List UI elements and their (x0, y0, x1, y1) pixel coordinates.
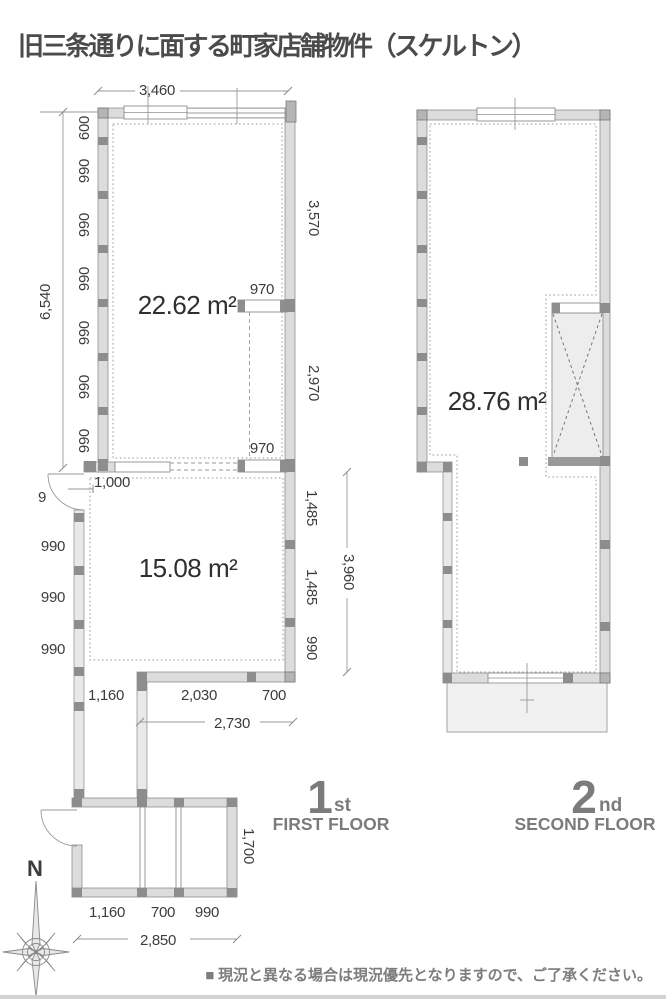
dim-label: 700 (151, 904, 175, 921)
wall (72, 888, 237, 897)
wall (137, 672, 295, 682)
dim-label: 600 (76, 116, 93, 140)
opening-post (238, 460, 245, 472)
floor-plan-drawing: 3,460 600 990 990 990 990 990 990 6,540 … (0, 0, 666, 999)
wall (98, 108, 108, 472)
dim-label: 2,030 (181, 687, 217, 704)
compass-north-label: N (27, 856, 43, 881)
dim-label: 1,160 (89, 904, 125, 921)
dim-label: 2,730 (214, 715, 250, 732)
dim-label: 990 (41, 589, 65, 606)
dim-label: 990 (76, 321, 93, 345)
dim-label: 2,970 (305, 365, 322, 401)
interior-opening (238, 460, 287, 472)
stair-post (519, 457, 528, 466)
wall (443, 472, 452, 683)
floor-name: SECOND FLOOR (515, 814, 656, 834)
dim-label: 990 (76, 429, 93, 453)
dim-label: 990 (303, 636, 320, 660)
partition-wall (140, 807, 145, 888)
floor-ordinal: nd (599, 795, 622, 816)
wall (74, 510, 84, 798)
compass-center (34, 950, 38, 954)
room-area-label: 15.08 m² (139, 553, 238, 583)
dim-label: 990 (76, 159, 93, 183)
floor1-plan: 3,460 600 990 990 990 990 990 990 6,540 … (37, 82, 390, 949)
opening-post (238, 300, 245, 312)
dim-label: 1,485 (303, 569, 320, 605)
floor2-caption: 2 nd SECOND FLOOR (515, 771, 656, 834)
compass-east-point (36, 949, 69, 956)
dim-label: 9 (38, 489, 46, 506)
interior-opening (238, 300, 287, 312)
compass-rose: N (3, 856, 69, 997)
floor-name: FIRST FLOOR (273, 814, 390, 834)
dim-label: 990 (76, 267, 93, 291)
dim-label: 1,485 (303, 490, 320, 526)
compass-north-point (32, 881, 40, 952)
dim-label: 1,160 (88, 687, 124, 704)
door-arc (48, 474, 84, 510)
bottom-border (0, 995, 666, 999)
dim-label: 990 (76, 375, 93, 399)
floor-plan-page: 旧三条通りに面する町家店舗物件（スケルトン） (0, 0, 666, 999)
wall (285, 108, 295, 682)
room-area-label: 28.76 m² (448, 386, 547, 416)
stairwell (519, 303, 603, 466)
wall (227, 798, 237, 897)
dim-label: 3,960 (340, 554, 357, 590)
floor-ordinal: st (334, 795, 352, 816)
wall (72, 798, 237, 807)
door-opening (115, 462, 170, 472)
dim-label: 3,460 (139, 82, 175, 99)
dim-label: 3,570 (305, 200, 322, 236)
dim-label: 970 (250, 281, 274, 298)
partition-wall (176, 807, 181, 888)
dim-label: 6,540 (37, 284, 54, 320)
wall (417, 110, 427, 472)
stair-post (552, 303, 560, 313)
floor1-caption: 1 st FIRST FLOOR (273, 771, 390, 834)
dim-label: 970 (250, 440, 274, 457)
dim-label: 700 (262, 687, 286, 704)
stair-beam (548, 457, 603, 466)
dim-label: 2,850 (140, 932, 176, 949)
floor2-plan: 28.76 m² 2 nd SECOND FLOOR (417, 98, 656, 834)
door-arc (41, 810, 77, 846)
dim-label: 990 (76, 213, 93, 237)
dim-label: 1,700 (240, 828, 257, 864)
dim-label: 990 (41, 538, 65, 555)
dim-label: 990 (195, 904, 219, 921)
floor1-walls (72, 108, 295, 897)
room-area-label: 22.62 m² (138, 290, 237, 320)
wall (137, 682, 147, 798)
compass-west-point (3, 949, 36, 956)
disclaimer-note: ■ 現況と異なる場合は現況優先となりますので、ご了承ください。 (205, 964, 652, 985)
compass-south-point (32, 952, 40, 997)
dim-label: 1,000 (94, 474, 130, 491)
dim-label: 990 (41, 641, 65, 658)
stair-box (552, 313, 603, 458)
